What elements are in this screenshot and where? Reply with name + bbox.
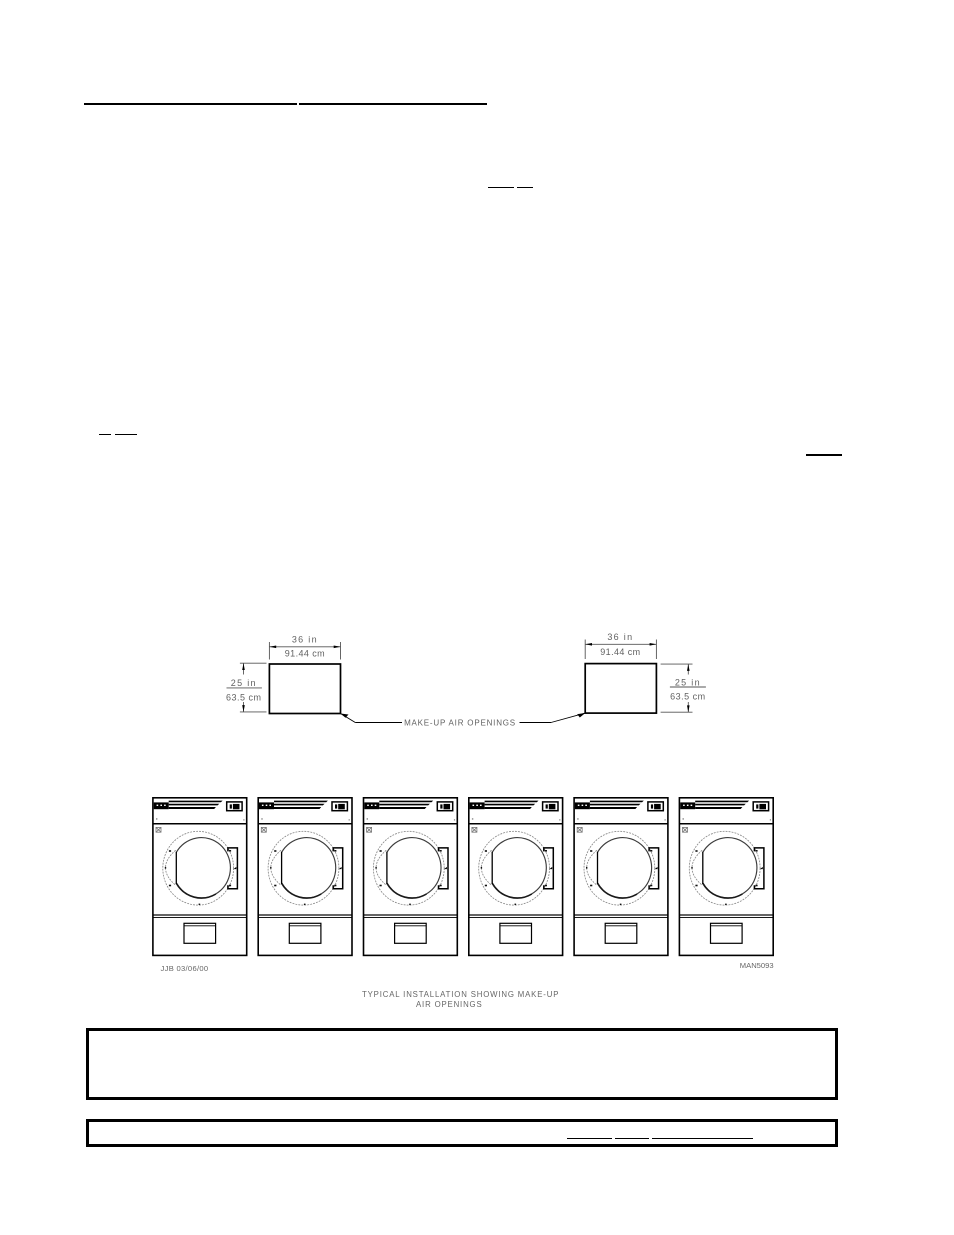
svg-text:25 in: 25 in	[231, 678, 257, 688]
svg-text:MAKE-UP AIR OPENINGS: MAKE-UP AIR OPENINGS	[404, 718, 516, 727]
svg-text:63.5 cm: 63.5 cm	[670, 691, 706, 701]
svg-text:25 in: 25 in	[675, 677, 701, 687]
svg-text:91.44 cm: 91.44 cm	[600, 647, 640, 657]
svg-text:36 in: 36 in	[292, 635, 318, 645]
svg-text:91.44 cm: 91.44 cm	[285, 649, 325, 659]
svg-text:63.5 cm: 63.5 cm	[226, 692, 262, 702]
svg-text:36 in: 36 in	[607, 632, 633, 642]
